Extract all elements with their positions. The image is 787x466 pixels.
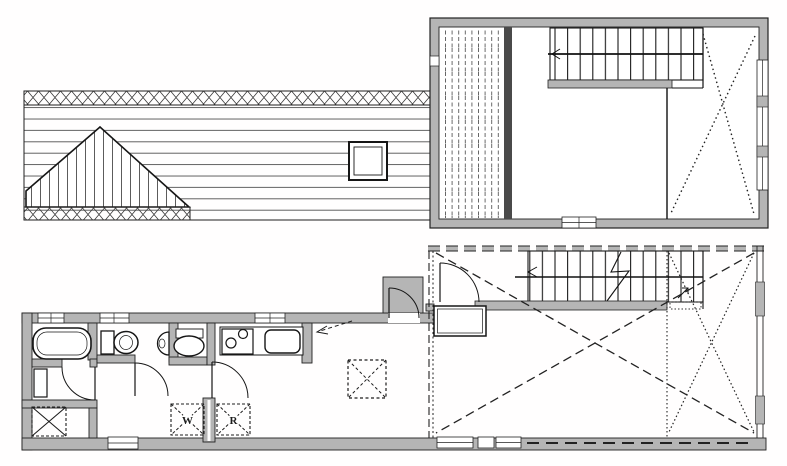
skylight <box>349 142 387 180</box>
windows-1f-bottom-right <box>437 437 521 448</box>
window-mullion <box>757 96 768 107</box>
upper-plan <box>24 18 768 228</box>
fixtures-1f <box>33 327 303 397</box>
door-swing-arc <box>440 263 479 302</box>
floor-plan-drawing: W R <box>0 0 787 466</box>
window-right-frame <box>756 396 765 424</box>
floor-hatch-square <box>348 360 386 398</box>
door-toilet <box>135 363 168 396</box>
covered-area-1f <box>428 246 765 448</box>
window-mullion <box>757 146 768 157</box>
door-swing-arc <box>62 367 95 400</box>
staircase-1f <box>475 251 703 310</box>
genkan-step <box>434 306 486 336</box>
upper-floor-room <box>430 18 768 228</box>
window-1f-bottom-left <box>108 437 138 449</box>
wall-bath-bottom <box>32 359 62 367</box>
window-2f-right <box>757 60 768 190</box>
floor-plan-sheet: W R <box>0 0 787 466</box>
window-bathroom <box>38 313 64 323</box>
bathtub <box>33 328 91 359</box>
toilet-tank <box>101 331 114 354</box>
door-entry-inner <box>440 263 479 302</box>
door-changing <box>62 367 95 400</box>
kitchen-counter <box>220 327 303 355</box>
window-kitchen <box>255 313 285 323</box>
sliding-pocket-slit <box>208 400 211 441</box>
roof-plan <box>24 91 430 220</box>
staircase-2f <box>548 28 703 88</box>
stair-rail-dotted <box>670 302 701 309</box>
wall-alcove-right <box>207 323 215 365</box>
wall-toilet-bottom <box>97 355 135 363</box>
door-swing-arc <box>135 363 168 396</box>
kitchen <box>220 327 303 355</box>
refrigerator-label: R <box>230 415 239 427</box>
washer-label: W <box>182 415 193 427</box>
toilet <box>101 331 138 354</box>
lower-plan: W R <box>22 246 766 450</box>
balcony-partition-wall <box>504 27 512 219</box>
wall-storage-right <box>89 408 97 438</box>
window-toilet <box>100 313 129 323</box>
storage-x-square <box>32 407 66 436</box>
wall-left <box>22 313 32 450</box>
door-hall-ldk <box>212 362 248 398</box>
eave-hatch-band <box>24 207 190 220</box>
wall-top <box>22 313 440 323</box>
toilet-bowl <box>114 332 138 354</box>
door-swing-arc <box>212 362 248 398</box>
balcony-deck <box>440 28 504 218</box>
window-2f-bottom <box>562 217 596 228</box>
window-right-frame <box>756 282 765 316</box>
door-opening <box>388 313 420 323</box>
wall-jamb <box>90 359 97 367</box>
wall-notch <box>430 56 439 66</box>
changing-cabinet <box>34 369 47 397</box>
stair-rail-wall-2f <box>548 80 672 88</box>
washbasin <box>174 336 204 356</box>
ridge-hatch-band <box>24 91 430 105</box>
window-frame <box>478 437 494 448</box>
wall-alcove-bottom <box>169 357 207 365</box>
stair-rail-wall-1f <box>475 301 667 310</box>
